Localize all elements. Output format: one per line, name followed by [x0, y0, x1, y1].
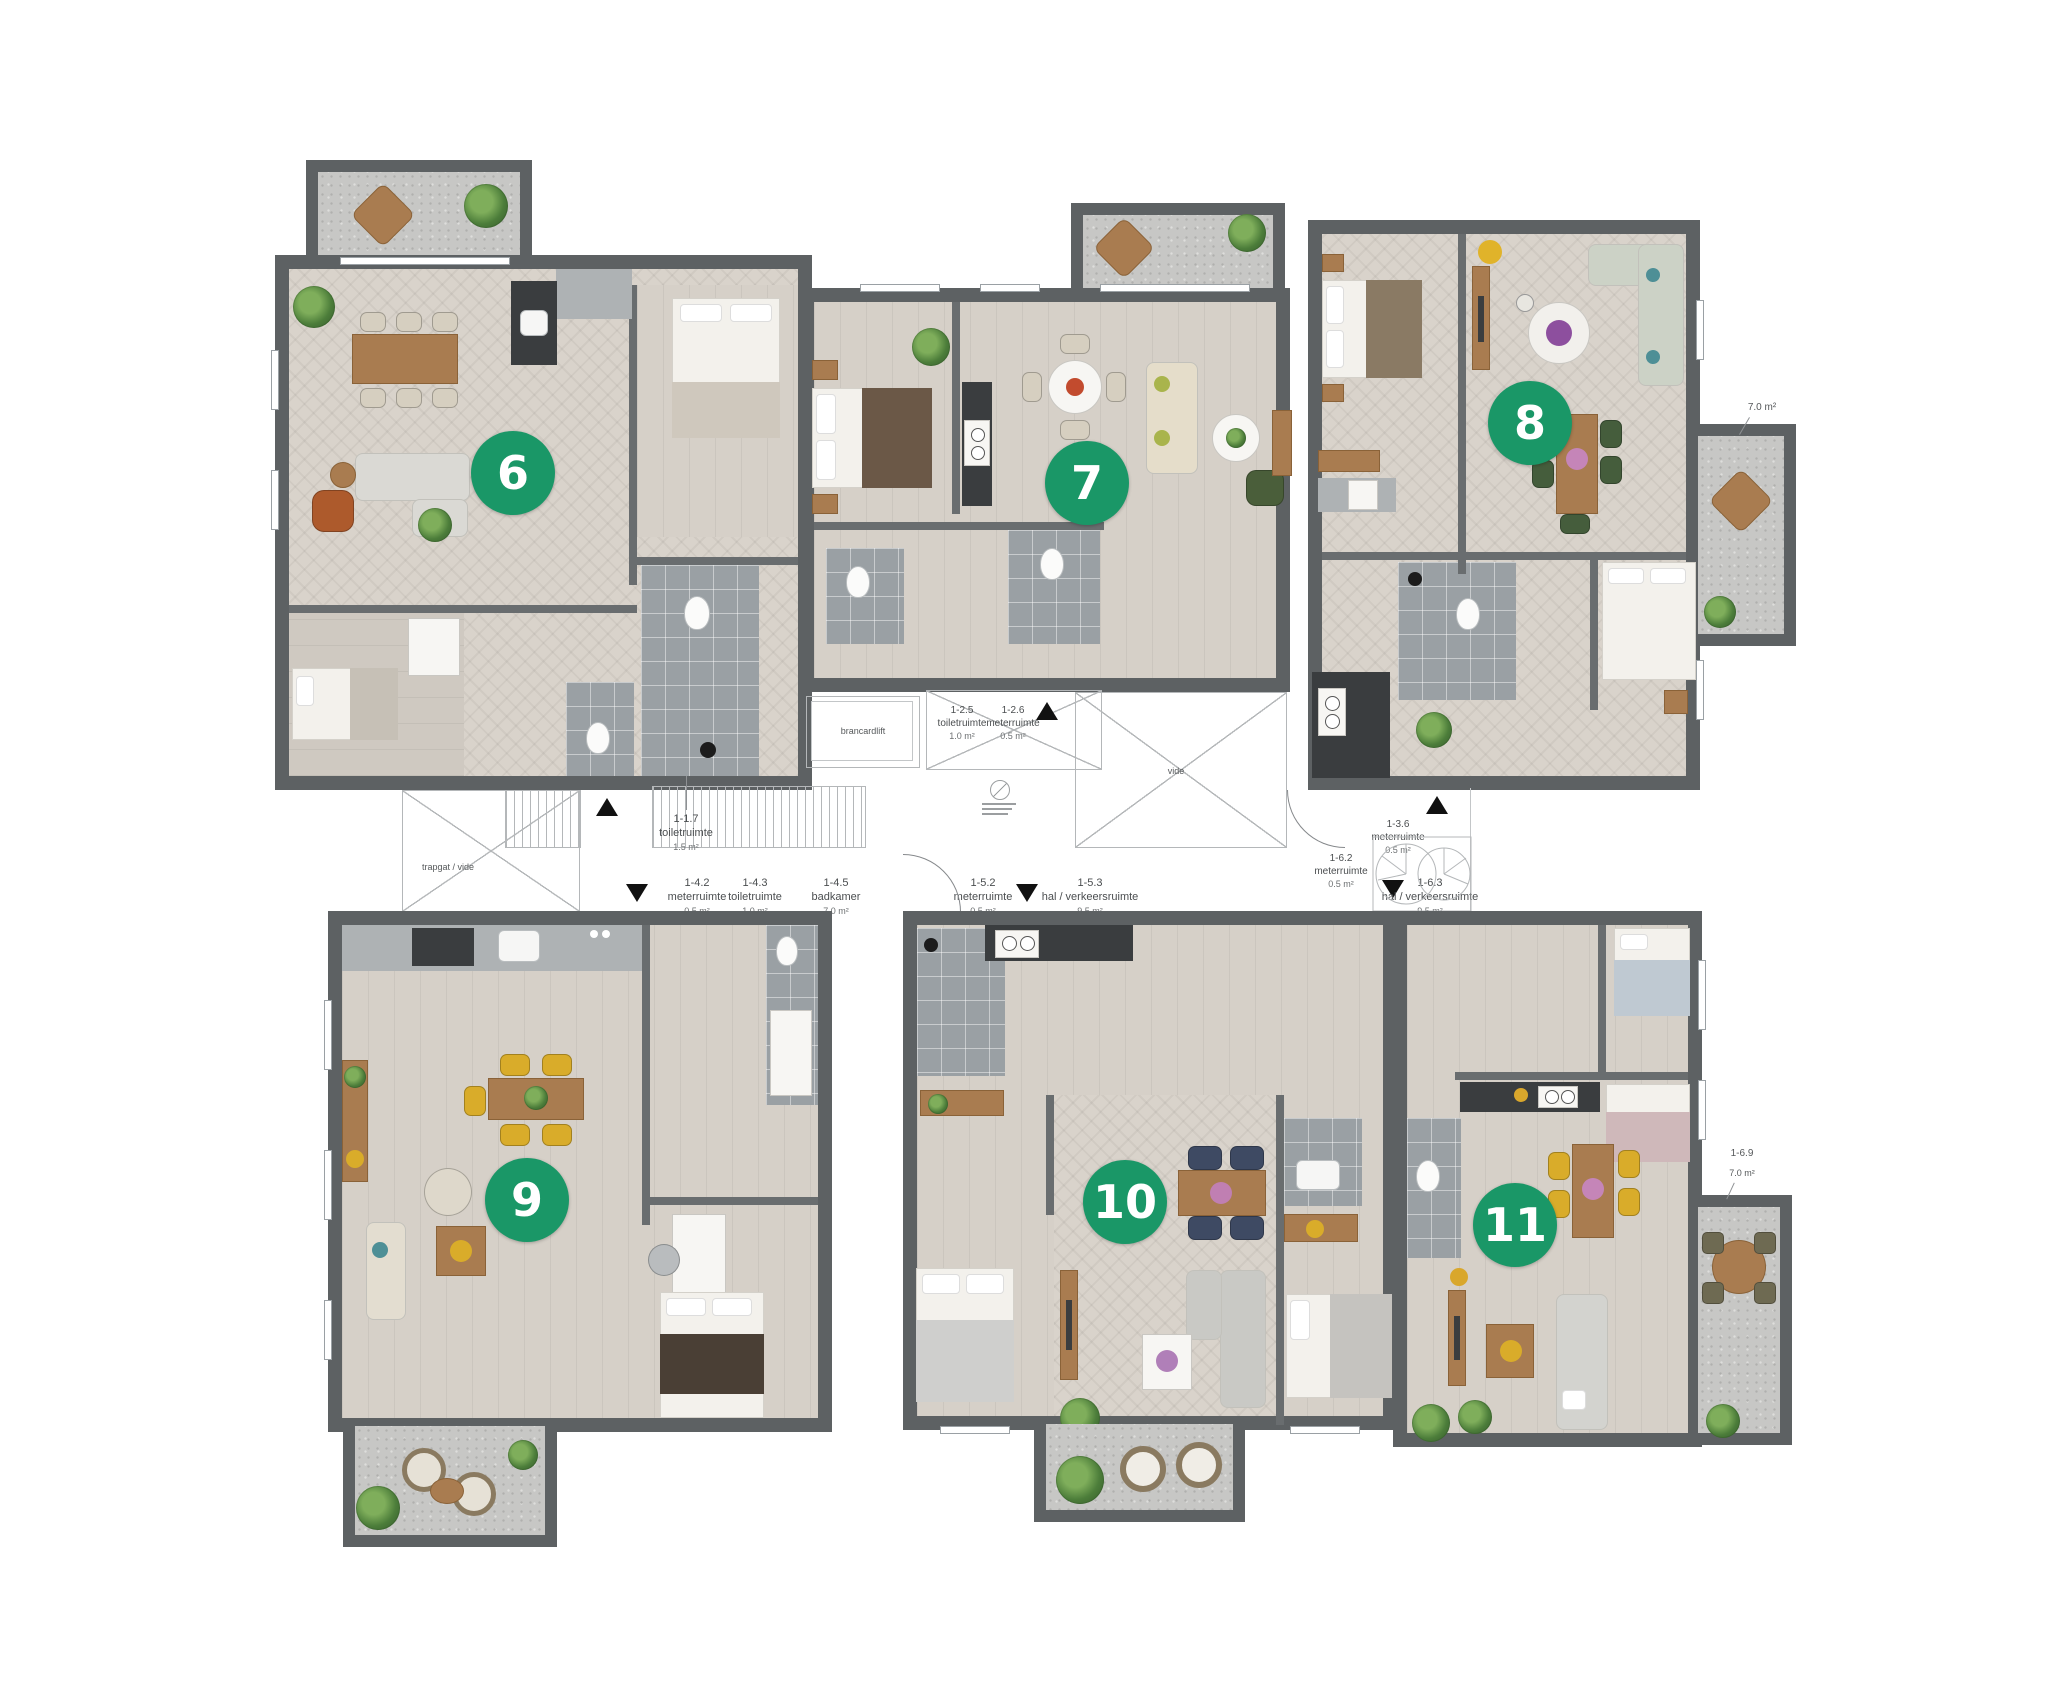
table-decor: [1566, 448, 1588, 470]
unit-9-wall: [642, 1197, 818, 1205]
burner: [971, 428, 985, 442]
desk: [672, 1214, 726, 1298]
chair: [1548, 1152, 1570, 1180]
armchair: [312, 490, 354, 532]
burner: [1545, 1090, 1559, 1104]
pillow: [1326, 330, 1344, 368]
toilet: [776, 936, 798, 966]
pillow: [1608, 568, 1644, 584]
pillow: [816, 394, 836, 434]
pillow: [712, 1298, 752, 1316]
chair: [1230, 1146, 1264, 1170]
shower-drain: [1408, 572, 1422, 586]
unit-8-wall: [1590, 560, 1598, 710]
side-table: [330, 462, 356, 488]
burner: [602, 930, 610, 938]
room-name: toiletruimte: [938, 717, 987, 730]
unit-badge-7[interactable]: 7: [1045, 441, 1129, 525]
room-name: hal / verkeersruimte: [1042, 890, 1139, 904]
leader-line: [686, 776, 687, 810]
room-name: toiletruimte: [659, 826, 713, 840]
unit-11-wall: [1455, 1072, 1688, 1080]
stamp-icon: [990, 780, 1010, 800]
unit-7-wall: [952, 302, 960, 514]
window: [1698, 960, 1706, 1030]
room-name: meterruimte: [668, 890, 727, 904]
kitchen-counter: [1460, 1082, 1600, 1112]
chair: [500, 1124, 530, 1146]
burner: [1561, 1090, 1575, 1104]
flower-bouquet: [1156, 1350, 1178, 1372]
toilet: [586, 722, 610, 754]
window: [340, 257, 510, 265]
plant: [1226, 428, 1246, 448]
terrace-8-area-label: 7.0 m²: [1748, 402, 1776, 413]
floor-lamp: [1450, 1268, 1468, 1286]
flower-bouquet: [1306, 1220, 1324, 1238]
plant: [1412, 1404, 1450, 1442]
room-area: 0.5 m²: [1314, 879, 1367, 891]
window: [1290, 1426, 1360, 1434]
door-arc: [1287, 790, 1345, 848]
plant: [508, 1440, 538, 1470]
unit-badge-6[interactable]: 6: [471, 431, 555, 515]
plant: [293, 286, 335, 328]
door-arc: [903, 854, 961, 912]
chair: [360, 312, 386, 332]
unit-6-wall: [289, 605, 637, 613]
direction-up-icon: [1426, 796, 1448, 814]
flower-bouquet: [1582, 1178, 1604, 1200]
pillow: [816, 440, 836, 480]
burner: [1325, 714, 1340, 729]
pillow: [1620, 934, 1648, 950]
pillow: [1154, 430, 1170, 446]
chair: [1600, 420, 1622, 448]
room-label-1-1-7: 1-1.7 toiletruimte 1.5 m²: [659, 812, 713, 853]
pillow: [1562, 1390, 1586, 1410]
chair: [432, 312, 458, 332]
room-area: 1.5 m²: [659, 842, 713, 854]
room-area: 0.5 m²: [986, 731, 1039, 743]
unit-8-wall: [1322, 552, 1686, 560]
shower-drain: [700, 742, 716, 758]
unit-9-wall: [642, 925, 650, 1225]
blanket: [862, 388, 932, 488]
flower-bouquet: [450, 1240, 472, 1262]
pillow: [666, 1298, 706, 1316]
direction-up-icon: [596, 798, 618, 816]
unit-7-bathroom2-floor: [1008, 530, 1100, 644]
plant: [464, 184, 508, 228]
blanket: [916, 1320, 1014, 1402]
window: [324, 1300, 332, 1360]
toilet: [1456, 598, 1480, 630]
window: [1696, 300, 1704, 360]
unit-7-bathroom-floor: [826, 548, 904, 644]
window: [1696, 660, 1704, 720]
nightstand: [1322, 254, 1344, 272]
chair: [1702, 1232, 1724, 1254]
chair: [396, 388, 422, 408]
office-chair: [648, 1244, 680, 1276]
window: [980, 284, 1040, 292]
pillow: [922, 1274, 960, 1294]
room-label-1-2-6: 1-2.6 meterruimte 0.5 m²: [986, 704, 1039, 743]
trapgat-label: trapgat / vide: [422, 862, 474, 872]
unit-6-wall: [629, 285, 637, 585]
unit-badge-8[interactable]: 8: [1488, 381, 1572, 465]
chair: [432, 388, 458, 408]
pillow: [1290, 1300, 1310, 1340]
chair: [396, 312, 422, 332]
pillow: [1650, 568, 1686, 584]
burner: [1002, 936, 1017, 951]
bowl: [1514, 1088, 1528, 1102]
terrace-table: [430, 1478, 464, 1504]
table-decor: [1066, 378, 1084, 396]
blanket: [350, 668, 398, 740]
window: [271, 350, 279, 410]
unit-10-wall: [1276, 1095, 1284, 1425]
washer: [1348, 480, 1378, 510]
flower-bouquet: [1210, 1182, 1232, 1204]
unit-11-wall: [1598, 925, 1606, 1075]
pillow: [296, 676, 314, 706]
unit-7-wall: [814, 522, 1104, 530]
unit-8-wall: [1458, 234, 1466, 574]
stove-block: [412, 928, 474, 966]
chair: [1230, 1216, 1264, 1240]
room-id: 1-6.2: [1314, 852, 1367, 865]
plant: [1706, 1404, 1740, 1438]
stamp-text: [982, 813, 1008, 815]
kitchen-sink: [498, 930, 540, 962]
chair: [1754, 1232, 1776, 1254]
stairs: [505, 790, 581, 848]
blanket: [1330, 1294, 1392, 1398]
chair: [1188, 1216, 1222, 1240]
nightstand: [1322, 384, 1344, 402]
sofa: [1638, 244, 1684, 386]
plant: [1056, 1456, 1104, 1504]
room-name: meterruimte: [954, 890, 1013, 904]
room-name: meterruimte: [986, 717, 1039, 730]
balcony-11-area-label: 7.0 m²: [1729, 1168, 1755, 1178]
window: [324, 1150, 332, 1220]
bowl: [346, 1150, 364, 1168]
room-name: badkamer: [812, 890, 861, 904]
unit-badge-11[interactable]: 11: [1473, 1183, 1557, 1267]
stamp-text: [982, 808, 1012, 810]
pillow: [730, 304, 772, 322]
sofa: [1146, 362, 1198, 474]
toilet: [684, 596, 710, 630]
brancardlift-label: brancardlift: [841, 726, 886, 736]
window: [1698, 1080, 1706, 1140]
chair: [1106, 372, 1126, 402]
toilet: [1416, 1160, 1440, 1192]
pillow: [966, 1274, 1004, 1294]
burner: [1325, 696, 1340, 711]
burner: [590, 930, 598, 938]
flower-bouquet: [1500, 1340, 1522, 1362]
desk: [1318, 450, 1380, 472]
plant: [418, 508, 452, 542]
chair: [360, 388, 386, 408]
room-id: 1-5.2: [954, 876, 1013, 890]
room-area: 1.0 m²: [938, 731, 987, 743]
window: [860, 284, 940, 292]
plant: [524, 1086, 548, 1110]
dining-table: [352, 334, 458, 384]
nightstand: [812, 360, 838, 380]
kitchen-counter: [556, 269, 632, 319]
lamp-shade: [1516, 294, 1534, 312]
armchair: [424, 1168, 472, 1216]
unit-10-wall: [1046, 1095, 1054, 1215]
plant: [912, 328, 950, 366]
window: [271, 470, 279, 530]
tv: [1454, 1316, 1460, 1360]
chair: [542, 1124, 572, 1146]
chair: [500, 1054, 530, 1076]
kitchen-sink: [520, 310, 548, 336]
sofa: [355, 453, 470, 501]
plant: [1704, 596, 1736, 628]
chair: [1560, 514, 1590, 534]
vide-label: vide: [1168, 766, 1185, 776]
nightstand: [812, 494, 838, 514]
room-id: 1-1.7: [659, 812, 713, 826]
blanket: [1614, 960, 1690, 1016]
chair: [464, 1086, 486, 1116]
pillow: [1326, 286, 1344, 324]
room-id: 1-4.2: [668, 876, 727, 890]
floor-lamp: [1478, 240, 1502, 264]
plant: [344, 1066, 366, 1088]
pillow: [1154, 376, 1170, 392]
window: [940, 1426, 1010, 1434]
burner: [971, 446, 985, 460]
floor-plan: 6: [0, 0, 2048, 1687]
room-id: 1-4.5: [812, 876, 861, 890]
blanket: [1366, 280, 1422, 378]
burner: [1020, 936, 1035, 951]
pillow: [680, 304, 722, 322]
pillow: [372, 1242, 388, 1258]
chair: [542, 1054, 572, 1076]
room-name: toiletruimte: [728, 890, 782, 904]
plant: [356, 1486, 400, 1530]
wicker-chair: [1120, 1446, 1166, 1492]
side-table: [1664, 690, 1688, 714]
room-id: 1-4.3: [728, 876, 782, 890]
stamp-text: [982, 803, 1016, 805]
wardrobe: [408, 618, 460, 676]
spiral-stair: [1372, 836, 1472, 912]
room-label-1-2-5: 1-2.5 toiletruimte 1.0 m²: [938, 704, 987, 743]
plant: [928, 1094, 948, 1114]
chair: [1702, 1282, 1724, 1304]
plant: [1458, 1400, 1492, 1434]
shower-drain: [924, 938, 938, 952]
chair: [1060, 334, 1090, 354]
toilet: [1040, 548, 1064, 580]
blanket: [672, 382, 780, 438]
sofa-chaise: [1186, 1270, 1222, 1340]
toilet: [846, 566, 870, 598]
plant: [1228, 214, 1266, 252]
chair: [1618, 1150, 1640, 1178]
tv-cabinet: [1272, 410, 1292, 476]
window: [324, 1000, 332, 1070]
room-id: 1-3.6: [1371, 818, 1424, 831]
room-id: 1-5.3: [1042, 876, 1139, 890]
unit-badge-10[interactable]: 10: [1083, 1160, 1167, 1244]
chair: [1618, 1188, 1640, 1216]
direction-down-icon: [626, 884, 648, 902]
room-id: 1-2.5: [938, 704, 987, 717]
chair: [1600, 456, 1622, 484]
window: [1100, 284, 1250, 292]
room-name: meterruimte: [1314, 865, 1367, 878]
chair: [1022, 372, 1042, 402]
room-id: 1-2.6: [986, 704, 1039, 717]
unit-badge-9[interactable]: 9: [485, 1158, 569, 1242]
direction-up-icon: [1036, 702, 1058, 720]
pillow: [1646, 350, 1660, 364]
bathroom-sink: [1296, 1160, 1340, 1190]
pillow: [1646, 268, 1660, 282]
balcony-11-id-label: 1-6.9: [1731, 1148, 1754, 1159]
wicker-chair: [1176, 1442, 1222, 1488]
room-label-1-6-2: 1-6.2 meterruimte 0.5 m²: [1314, 852, 1367, 891]
chair: [1754, 1282, 1776, 1304]
direction-down-icon: [1016, 884, 1038, 902]
blanket: [660, 1334, 764, 1394]
flower-bouquet: [1546, 320, 1572, 346]
chair: [1188, 1146, 1222, 1170]
sofa: [366, 1222, 406, 1320]
unit-6-wall: [629, 557, 798, 565]
chair: [1060, 420, 1090, 440]
tv: [1066, 1300, 1072, 1350]
plant: [1416, 712, 1452, 748]
bathtub: [770, 1010, 812, 1096]
sofa: [1220, 1270, 1266, 1408]
tv: [1478, 296, 1484, 342]
